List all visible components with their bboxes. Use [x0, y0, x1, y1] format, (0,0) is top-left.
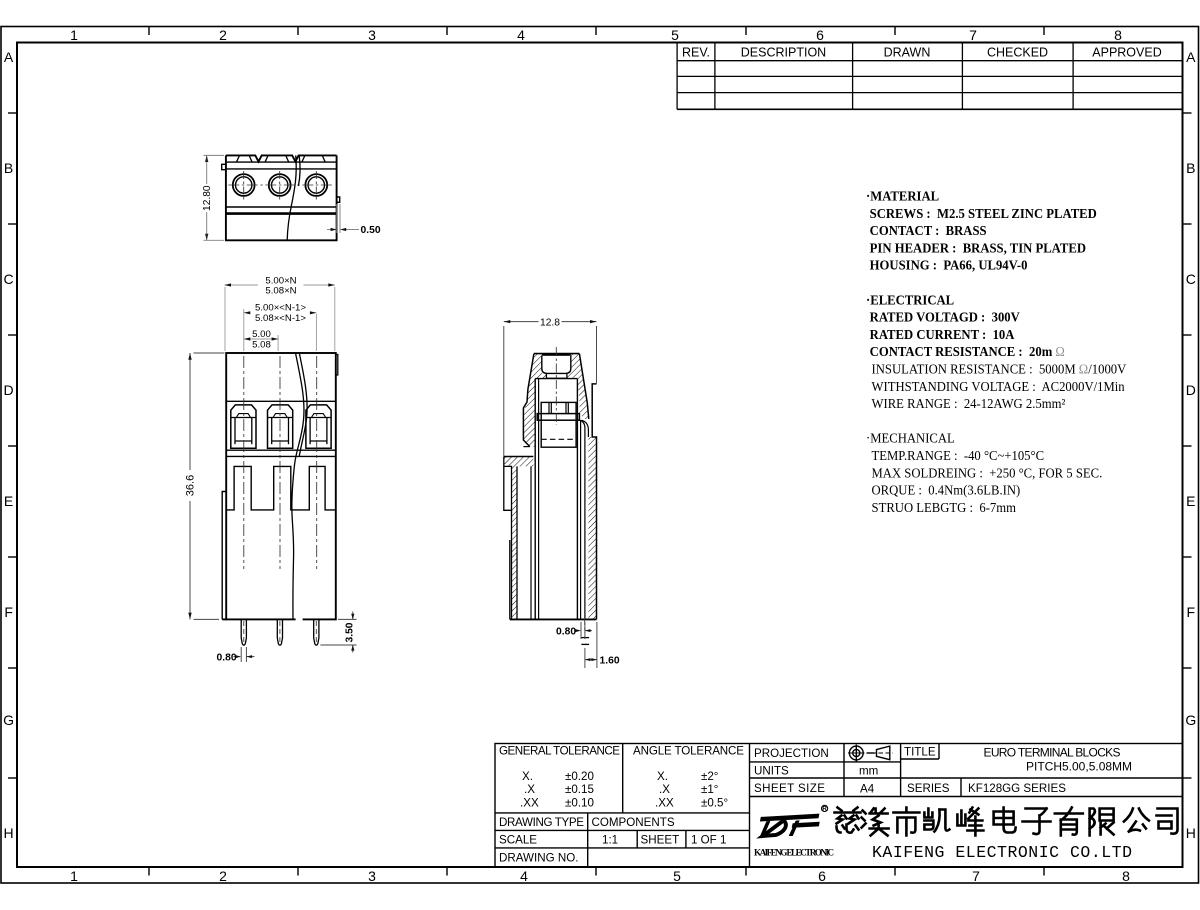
- svg-text:±0.15: ±0.15: [565, 783, 594, 796]
- svg-text:1: 1: [70, 27, 78, 43]
- svg-text:PIN HEADER : BRASS, TIN PLATE: PIN HEADER : BRASS, TIN PLATED: [870, 240, 1086, 256]
- svg-text:12.80: 12.80: [202, 185, 213, 211]
- svg-text:RATED VOLTAGD : 300V: RATED VOLTAGD : 300V: [870, 309, 1021, 325]
- svg-text:0.80: 0.80: [217, 652, 237, 663]
- svg-text:SCREWS : M2.5 STEEL ZINC PLAT: SCREWS : M2.5 STEEL ZINC PLATED: [870, 205, 1097, 221]
- svg-text:PITCH5.00,5.08MM: PITCH5.00,5.08MM: [1026, 760, 1132, 774]
- svg-text:GENERAL TOLERANCE: GENERAL TOLERANCE: [499, 745, 620, 758]
- svg-text:KAIFENG ELECTRONIC CO.LTD: KAIFENG ELECTRONIC CO.LTD: [872, 843, 1132, 862]
- svg-text:0.80: 0.80: [556, 627, 576, 638]
- svg-text:1.60: 1.60: [600, 656, 620, 667]
- svg-text:STRUO LEBGTG : 6-7mm: STRUO LEBGTG : 6-7mm: [872, 499, 1017, 515]
- svg-text:APPROVED: APPROVED: [1092, 46, 1161, 60]
- svg-text:B: B: [1186, 160, 1195, 176]
- svg-text:1: 1: [70, 868, 78, 884]
- svg-text:5.08×<N-1>: 5.08×<N-1>: [255, 313, 306, 324]
- svg-text:E: E: [4, 493, 13, 509]
- svg-text:UNITS: UNITS: [754, 765, 789, 778]
- svg-text:WITHSTANDING VOLTAGE : AC2000: WITHSTANDING VOLTAGE : AC2000V/1Min: [872, 378, 1125, 394]
- svg-text:SHEET SIZE: SHEET SIZE: [754, 782, 825, 795]
- svg-text:ORQUE : 0.4Nm(3.6LB.IN): ORQUE : 0.4Nm(3.6LB.IN): [872, 482, 1021, 498]
- svg-text:4: 4: [520, 868, 528, 884]
- svg-text:E: E: [1186, 493, 1195, 509]
- svg-text:12.8: 12.8: [540, 318, 560, 329]
- svg-text:TITLE: TITLE: [904, 746, 936, 759]
- svg-text:H: H: [4, 825, 14, 841]
- svg-text:X.: X.: [522, 770, 533, 783]
- svg-text:D: D: [4, 382, 14, 398]
- svg-text:KF128GG SERIES: KF128GG SERIES: [968, 782, 1066, 795]
- svg-text:±1°: ±1°: [701, 783, 718, 796]
- svg-text:36.6: 36.6: [185, 475, 197, 496]
- svg-text:PROJECTION: PROJECTION: [754, 747, 829, 760]
- svg-text:C: C: [1186, 271, 1196, 287]
- svg-text:A: A: [1186, 49, 1196, 65]
- svg-text:INSULATION RESISTANCE : 5000M: INSULATION RESISTANCE : 5000M Ω/1000V: [872, 361, 1127, 377]
- svg-text:B: B: [4, 160, 13, 176]
- svg-text:SERIES: SERIES: [907, 782, 950, 795]
- svg-text:G: G: [3, 712, 14, 728]
- svg-text:0.50: 0.50: [361, 225, 381, 236]
- svg-text:4: 4: [517, 27, 525, 43]
- svg-text:D: D: [1186, 382, 1196, 398]
- svg-text:2: 2: [219, 27, 227, 43]
- svg-text:.XX: .XX: [655, 796, 674, 809]
- svg-text:KAIFENG ELECTRONIC: KAIFENG ELECTRONIC: [754, 848, 834, 858]
- svg-text:EURO TERMINAL BLOCKS: EURO TERMINAL BLOCKS: [984, 746, 1121, 760]
- svg-text:6: 6: [818, 868, 826, 884]
- svg-text:DRAWN: DRAWN: [884, 46, 931, 60]
- svg-text:R: R: [822, 806, 827, 813]
- svg-text:COMPONENTS: COMPONENTS: [592, 816, 675, 829]
- svg-text:8: 8: [1122, 868, 1130, 884]
- svg-text:DRAWING TYPE: DRAWING TYPE: [499, 816, 584, 829]
- svg-text:WIRE RANGE : 24-12AWG 2.5mm²: WIRE RANGE : 24-12AWG 2.5mm²: [872, 396, 1066, 412]
- svg-text:2: 2: [219, 868, 227, 884]
- svg-text:·ELECTRICAL: ·ELECTRICAL: [866, 292, 954, 308]
- svg-text:5.08×N: 5.08×N: [265, 286, 296, 297]
- svg-text:5: 5: [673, 868, 681, 884]
- svg-text:±0.5°: ±0.5°: [701, 796, 728, 809]
- svg-text:G: G: [1185, 712, 1196, 728]
- svg-text:±2°: ±2°: [701, 770, 718, 783]
- svg-text:SCALE: SCALE: [499, 834, 537, 847]
- svg-text:CONTACT RESISTANCE : 20m Ω: CONTACT RESISTANCE : 20m Ω: [870, 344, 1065, 360]
- svg-text:7: 7: [972, 868, 980, 884]
- svg-text:3: 3: [368, 27, 376, 43]
- svg-text:.X: .X: [524, 783, 535, 796]
- svg-text:ANGLE TOLERANCE: ANGLE TOLERANCE: [633, 745, 744, 758]
- svg-text:1 OF 1: 1 OF 1: [691, 834, 726, 847]
- svg-text:3: 3: [368, 868, 376, 884]
- svg-text:MAX SOLDREING : +250 °C, FOR: MAX SOLDREING : +250 °C, FOR 5 SEC.: [872, 465, 1103, 481]
- svg-text:8: 8: [1114, 27, 1122, 43]
- svg-text:TEMP.RANGE : -40 °C~+105°C: TEMP.RANGE : -40 °C~+105°C: [872, 448, 1045, 464]
- svg-text:H: H: [1186, 825, 1196, 841]
- svg-text:5.08: 5.08: [252, 340, 271, 351]
- svg-text:C: C: [4, 271, 14, 287]
- svg-text:CHECKED: CHECKED: [987, 46, 1048, 60]
- svg-text:F: F: [4, 604, 13, 620]
- svg-text:5: 5: [671, 27, 679, 43]
- svg-text:X.: X.: [657, 770, 668, 783]
- svg-text:A4: A4: [860, 782, 875, 795]
- svg-text:DRAWING NO.: DRAWING NO.: [499, 852, 578, 865]
- svg-text:±0.10: ±0.10: [565, 796, 594, 809]
- svg-text:7: 7: [969, 27, 977, 43]
- svg-text:5.00: 5.00: [252, 329, 271, 340]
- svg-text:CONTACT : BRASS: CONTACT : BRASS: [870, 223, 987, 239]
- svg-text:1:1: 1:1: [602, 834, 618, 847]
- svg-text:±0.20: ±0.20: [565, 770, 594, 783]
- svg-text:SHEET: SHEET: [641, 834, 680, 847]
- svg-text:mm: mm: [859, 765, 878, 778]
- svg-text:·MATERIAL: ·MATERIAL: [866, 188, 939, 204]
- svg-text:.XX: .XX: [520, 796, 539, 809]
- svg-text:REV.: REV.: [682, 46, 710, 60]
- svg-text:6: 6: [816, 27, 824, 43]
- svg-text:F: F: [1187, 604, 1196, 620]
- svg-text:3.50: 3.50: [344, 622, 355, 642]
- svg-text:DESCRIPTION: DESCRIPTION: [741, 46, 826, 60]
- svg-text:HOUSING : PA66, UL94V-0: HOUSING : PA66, UL94V-0: [870, 257, 1028, 273]
- svg-text:.X: .X: [659, 783, 670, 796]
- svg-text:·MECHANICAL: ·MECHANICAL: [866, 430, 955, 446]
- svg-text:RATED CURRENT : 10A: RATED CURRENT : 10A: [870, 326, 1015, 342]
- svg-text:A: A: [4, 49, 14, 65]
